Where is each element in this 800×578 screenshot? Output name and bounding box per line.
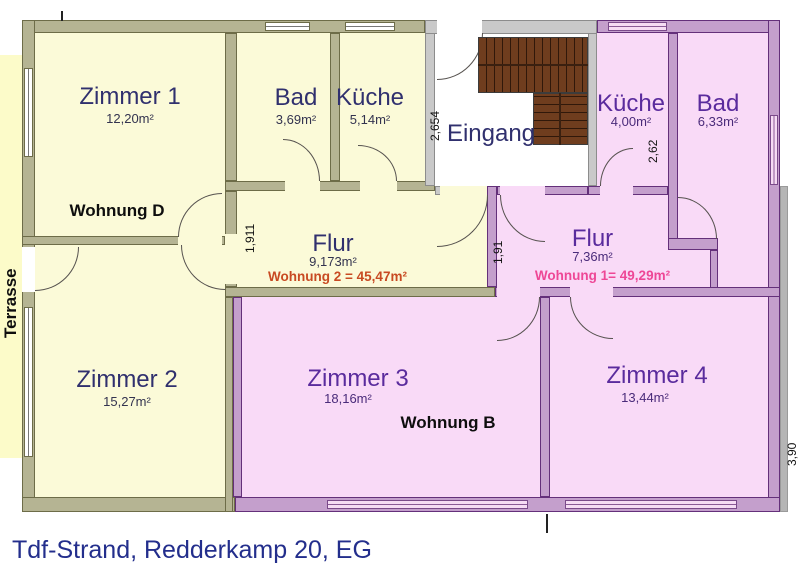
bad-1-area: 6,33m² <box>680 115 756 129</box>
stairs-divider <box>478 64 588 66</box>
dimension-kueche-1: 2,62 <box>646 125 660 177</box>
kueche-d-area: 5,14m² <box>325 113 415 127</box>
tick-mark <box>546 514 548 533</box>
window <box>24 307 33 457</box>
kueche-d-label: Küche <box>325 85 415 111</box>
window <box>345 22 395 31</box>
wohnung-b-label: Wohnung B <box>388 414 508 433</box>
wall <box>225 181 435 191</box>
dimension-flur-2: 1,911 <box>243 210 257 266</box>
wohnung-1-total: Wohnung 1= 49,29m² <box>505 269 700 284</box>
window <box>608 22 667 31</box>
flur-1-area: 7,36m² <box>545 250 640 264</box>
door-opening <box>22 247 35 292</box>
wall <box>225 297 233 512</box>
wall <box>768 20 780 512</box>
wall <box>225 33 237 181</box>
window <box>327 500 528 509</box>
wall <box>668 238 718 250</box>
terrasse-label: Terrasse <box>1 248 21 358</box>
door-opening <box>497 287 540 297</box>
stairs-divider <box>559 93 561 145</box>
dimension-eingang: 2,654 <box>428 95 444 157</box>
door-opening <box>360 181 397 191</box>
bad-d-label: Bad <box>256 85 336 111</box>
zimmer1-label: Zimmer 1 <box>50 84 210 110</box>
window <box>265 22 310 31</box>
door-opening <box>225 234 237 284</box>
floor-plan: Zimmer 1 12,20m² Bad 3,69m² Küche 5,14m²… <box>0 0 800 578</box>
door-opening <box>570 287 613 297</box>
plan-title: Tdf-Strand, Redderkamp 20, EG <box>12 536 372 565</box>
wall <box>233 297 242 497</box>
door-opening <box>178 236 222 245</box>
tick-mark <box>61 11 63 21</box>
window <box>565 500 737 509</box>
zimmer4-label: Zimmer 4 <box>577 363 737 389</box>
wall <box>22 497 235 512</box>
zimmer4-area: 13,44m² <box>565 391 725 405</box>
eingang-label: Eingang <box>437 121 545 147</box>
zimmer2-label: Zimmer 2 <box>47 367 207 393</box>
window <box>24 68 33 157</box>
door-opening <box>285 181 320 191</box>
door-opening <box>500 186 545 195</box>
zimmer3-label: Zimmer 3 <box>278 366 438 392</box>
wohnung-2-total: Wohnung 2 = 45,47m² <box>240 270 435 285</box>
dimension-flur-1: 1,91 <box>491 228 505 276</box>
window <box>770 115 778 185</box>
zimmer2-area: 15,27m² <box>47 395 207 409</box>
wall <box>540 297 550 497</box>
bad-d-area: 3,69m² <box>256 113 336 127</box>
zimmer3-area: 18,16m² <box>268 392 428 406</box>
door-opening <box>600 186 633 195</box>
door-opening <box>437 20 482 34</box>
wall <box>225 287 495 297</box>
flur-2-area: 9,173m² <box>283 255 383 269</box>
zimmer1-area: 12,20m² <box>50 112 210 126</box>
door-opening <box>440 186 487 195</box>
wohnung-d-label: Wohnung D <box>57 202 177 221</box>
dimension-right-side: 3,90 <box>785 428 799 480</box>
wall <box>668 33 678 250</box>
